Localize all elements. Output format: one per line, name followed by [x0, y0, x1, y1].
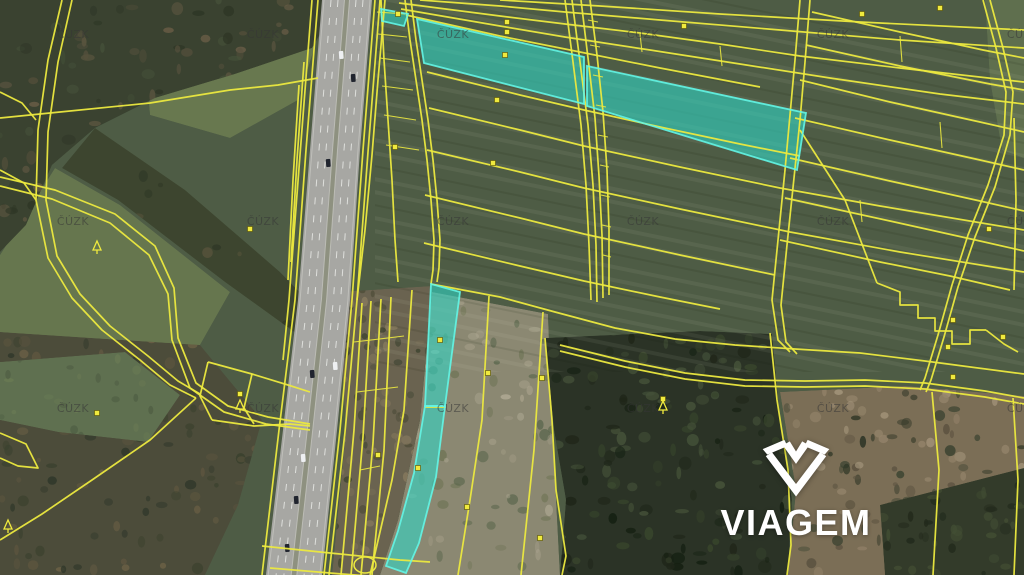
parcel-number-marker: [486, 371, 491, 376]
cuzk-watermark: ČÚZK: [817, 28, 850, 41]
cuzk-watermark: ČÚZK: [627, 215, 660, 228]
parcel-number-marker: [505, 30, 510, 35]
parcel-number-marker: [540, 376, 545, 381]
cuzk-watermark: ČÚZK: [247, 28, 280, 41]
cuzk-watermark: ČÚZK: [57, 215, 90, 228]
parcel-number-marker: [538, 536, 543, 541]
parcel-number-marker: [951, 318, 956, 323]
cuzk-watermark: ČÚZK: [1007, 402, 1024, 415]
parcel-number-marker: [465, 505, 470, 510]
cuzk-watermark: ČÚZK: [437, 28, 470, 41]
parcel-number-marker: [95, 411, 100, 416]
cuzk-watermark: ČÚZK: [437, 402, 470, 415]
cuzk-watermark: ČÚZK: [57, 402, 90, 415]
parcel-number-marker: [951, 375, 956, 380]
parcel-number-marker: [946, 345, 951, 350]
parcel-number-marker: [505, 20, 510, 25]
parcel-number-marker: [1001, 335, 1006, 340]
parcel-number-marker: [238, 392, 243, 397]
parcel-number-marker: [491, 161, 496, 166]
parcel-number-marker: [396, 12, 401, 17]
cuzk-watermark: ČÚZK: [437, 215, 470, 228]
cuzk-watermark: ČÚZK: [817, 402, 850, 415]
cuzk-watermark: ČÚZK: [1007, 215, 1024, 228]
cuzk-watermark: ČÚZK: [627, 402, 660, 415]
aerial-cadastral-map: ČÚZKČÚZKČÚZKČÚZKČÚZKČÚZKČÚZKČÚZKČÚZKČÚZK…: [0, 0, 1024, 575]
parcel-number-marker: [860, 12, 865, 17]
cuzk-watermark: ČÚZK: [247, 402, 280, 415]
cuzk-watermark: ČÚZK: [627, 28, 660, 41]
map-viewport[interactable]: ČÚZKČÚZKČÚZKČÚZKČÚZKČÚZKČÚZKČÚZKČÚZKČÚZK…: [0, 0, 1024, 575]
parcel-number-marker: [503, 53, 508, 58]
cuzk-watermark: ČÚZK: [1007, 28, 1024, 41]
cuzk-watermark: ČÚZK: [247, 215, 280, 228]
parcel-number-marker: [393, 145, 398, 150]
cuzk-watermark: ČÚZK: [57, 28, 90, 41]
parcel-number-marker: [376, 453, 381, 458]
cuzk-watermark: ČÚZK: [817, 215, 850, 228]
parcel-number-marker: [416, 466, 421, 471]
parcel-number-marker: [682, 24, 687, 29]
parcel-number-marker: [938, 6, 943, 11]
parcel-number-marker: [495, 98, 500, 103]
parcel-number-marker: [438, 338, 443, 343]
parcel-number-marker: [987, 227, 992, 232]
